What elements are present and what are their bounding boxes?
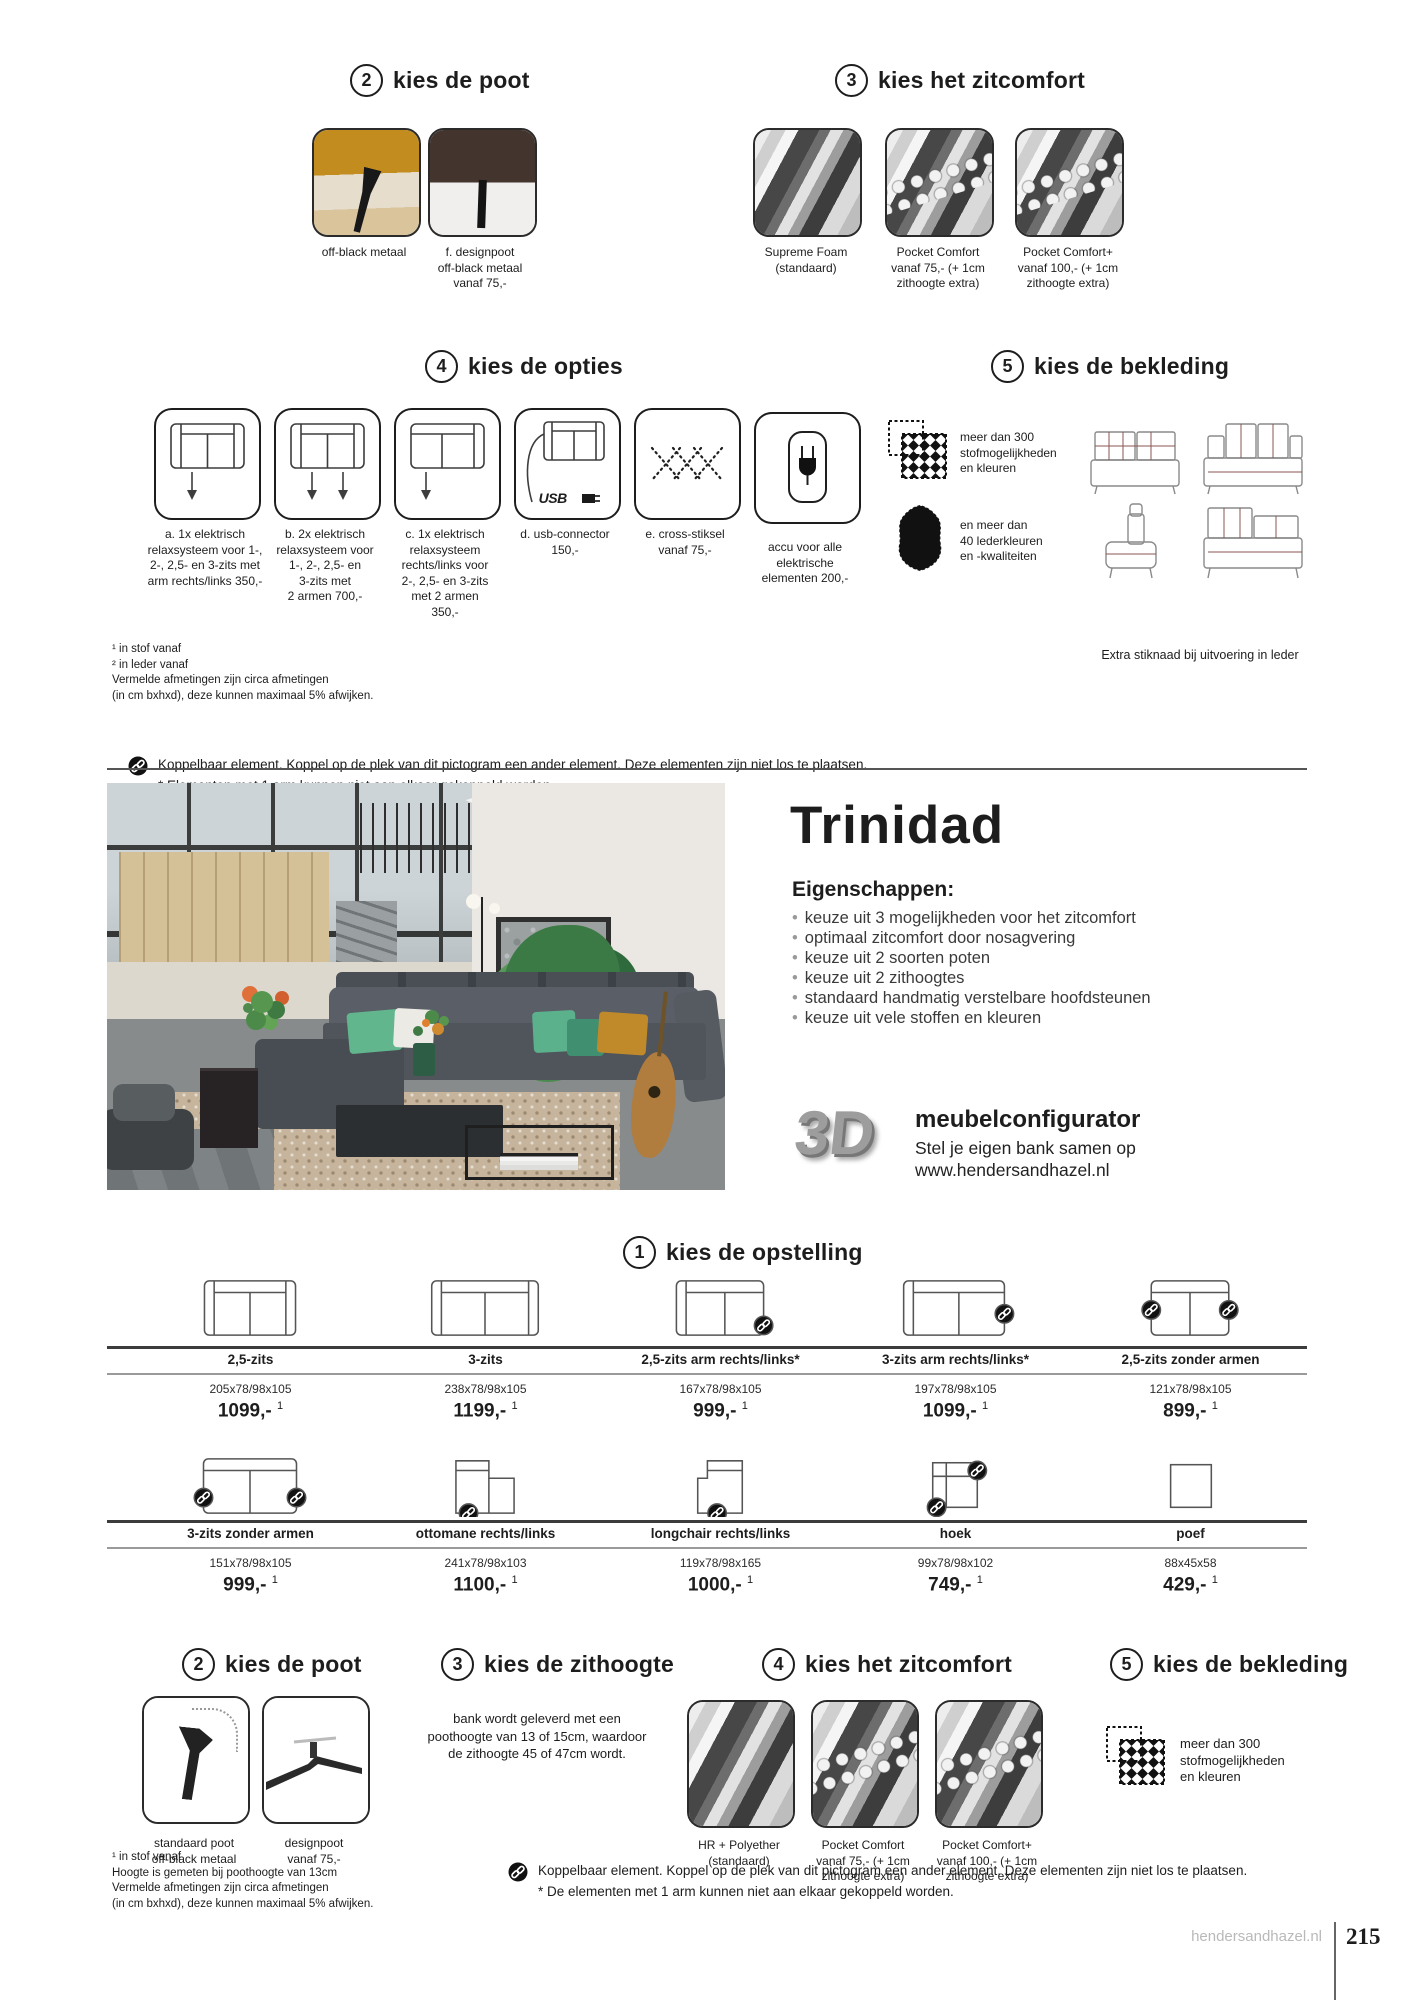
leg-photo-art [314,130,419,235]
pouf-small [113,1084,175,1121]
feature-item: •keuze uit 2 zithoogtes [792,968,964,989]
config-dimensions: 121x78/98x105 [1073,1382,1308,1396]
config-price: 749,- 1 [838,1574,1073,1596]
pictogram-2-5-zits-zonder-armen [1115,1277,1265,1339]
section-title: kies de poot [225,1651,362,1678]
table-rule [107,1373,1307,1375]
comfort-photo-supreme-foam [753,128,862,237]
config-dimensions: 238x78/98x105 [368,1382,603,1396]
pictogram-3-zits-zonder-armen [175,1455,325,1517]
leg-drawing-standaard [142,1696,250,1824]
pictogram-2-5-zits [175,1277,325,1339]
option-relax-2x-icon [274,408,381,520]
stitch-sofa-side-drawing [1098,502,1164,582]
cushion-ochre [597,1011,649,1055]
feature-item: •keuze uit 2 soorten poten [792,948,990,969]
pictogram-longchair [645,1455,795,1517]
feature-item: •keuze uit 3 mogelijkheden voor het zitc… [792,908,1136,929]
pictogram-ottomane [410,1455,560,1517]
product-title: Trinidad [790,795,1004,856]
section-number: 3 [835,64,868,97]
option-relax-1x-icon [154,408,261,520]
comfort-photo-pocket-plus [1015,128,1124,237]
stitch-sofa-drawing [1198,418,1308,498]
table-rule [107,1346,1307,1349]
pictogram-3-zits-arm [880,1277,1030,1339]
section-number: 2 [182,1648,215,1681]
config-dimensions: 99x78/98x102 [838,1556,1073,1570]
config-name: 2,5-zits zonder armen [1073,1352,1308,1367]
config-dimensions: 197x78/98x105 [838,1382,1073,1396]
configurator-title: meubelconfigurator [915,1106,1140,1134]
section-title: kies de opstelling [666,1239,863,1266]
config-price: 1199,- 1 [368,1400,603,1422]
config-dimensions: 241x78/98x103 [368,1556,603,1570]
section-zitcomfort-top: 3 kies het zitcomfort [835,64,1085,97]
pictogram-3-zits [410,1277,560,1339]
pictogram-poef [1115,1455,1265,1517]
config-price: 899,- 1 [1073,1400,1308,1422]
footer-divider [1334,1922,1336,2000]
zithoogte-text: bank wordt geleverd met een poothoogte v… [397,1710,677,1763]
comfort-photo-pocket-plus [935,1700,1043,1828]
section-title: kies de poot [393,67,530,94]
configurator-line1: Stel je eigen bank samen op [915,1138,1136,1159]
section-number: 3 [441,1648,474,1681]
footnotes-top: ¹ in stof vanaf ² in leder vanaf Vermeld… [112,642,373,704]
usb-logo-text: USB [539,490,567,506]
feature-item: •keuze uit vele stoffen en kleuren [792,1008,1041,1029]
config-price: 1099,- 1 [838,1400,1073,1422]
config-dimensions: 88x45x58 [1073,1556,1308,1570]
config-name: 3-zits [368,1352,603,1367]
comfort-photo-pocket [885,128,994,237]
config-price: 999,- 1 [603,1400,838,1422]
option-accu-icon [754,412,861,524]
stitch-sofa-drawing [1198,502,1308,582]
configurator-3d-logo: 3D [791,1098,878,1169]
koppelbaar-icon [506,1860,530,1884]
section-number: 4 [425,350,458,383]
section-number: 2 [350,64,383,97]
table-rule [107,1547,1307,1549]
leg-photo-off-black [312,128,421,237]
section-number: 1 [623,1236,656,1269]
option-usb-icon: USB [514,408,621,520]
section-number: 4 [762,1648,795,1681]
footnotes-bottom: ¹ in stof vanaf Hoogte is gemeten bij po… [112,1850,373,1912]
config-dimensions: 119x78/98x165 [603,1556,838,1570]
config-dimensions: 167x78/98x105 [603,1382,838,1396]
product-photo-living-room [107,783,725,1190]
books [500,1153,578,1170]
section-zitcomfort-bottom: 4 kies het zitcomfort [762,1648,1012,1681]
config-price: 999,- 1 [133,1574,368,1596]
pictogram-hoek [880,1455,1030,1517]
configurator-line2: www.hendersandhazel.nl [915,1160,1110,1181]
cushion-white [393,1008,435,1049]
config-name: ottomane rechts/links [368,1526,603,1541]
section-opstelling: 1 kies de opstelling [623,1236,863,1269]
comfort-photo-hr-polyether [687,1700,795,1828]
comfort-photo-pocket [811,1700,919,1828]
feature-item: •optimaal zitcomfort door nosagvering [792,928,1075,949]
features-heading: Eigenschappen: [792,878,954,902]
page-number: 215 [1346,1924,1381,1950]
section-number: 5 [1110,1648,1143,1681]
feature-item: •standaard handmatig verstelbare hoofdst… [792,988,1151,1009]
table-rule [107,1520,1307,1523]
vase [413,1043,435,1076]
section-bekleding-bottom: 5 kies de bekleding [1110,1648,1348,1681]
option-label: accu voor alle elektrische elementen 200… [723,540,887,587]
config-name: longchair rechts/links [603,1526,838,1541]
pictogram-2-5-zits-arm [645,1277,795,1339]
config-dimensions: 151x78/98x105 [133,1556,368,1570]
option-cross-stiksel-icon [634,408,741,520]
fabric-swatch-icon [1104,1724,1168,1790]
leather-label: en meer dan 40 lederkleuren en -kwalitei… [960,518,1090,565]
config-name: hoek [838,1526,1073,1541]
comfort-label: Pocket Comfort vanaf 75,- (+ 1cm zithoog… [868,245,1008,292]
config-price: 1100,- 1 [368,1574,603,1596]
section-opties: 4 kies de opties [425,350,623,383]
fabric-label: meer dan 300 stofmogelijkheden en kleure… [1180,1736,1320,1786]
stitch-sofa-drawing [1085,424,1185,498]
comfort-label: Supreme Foam (standaard) [736,245,876,276]
section-bekleding-top: 5 kies de bekleding [991,350,1229,383]
koppelbaar-icon [126,754,150,778]
config-name: 3-zits zonder armen [133,1526,368,1541]
config-price: 1000,- 1 [603,1574,838,1596]
section-poot-top: 2 kies de poot [350,64,530,97]
fabric-swatch-icon [886,418,950,484]
leg-photo-art [430,130,535,235]
catalog-page: 2 kies de poot off-black metaal f. desig… [0,0,1414,2000]
section-title: kies het zitcomfort [805,1651,1012,1678]
config-dimensions: 205x78/98x105 [133,1382,368,1396]
section-title: kies de bekleding [1153,1651,1348,1678]
section-number: 5 [991,350,1024,383]
leg-photo-designpoot [428,128,537,237]
section-title: kies de bekleding [1034,353,1229,380]
balcony-railing [360,803,477,872]
section-title: kies het zitcomfort [878,67,1085,94]
config-price: 429,- 1 [1073,1574,1308,1596]
flower-bouquet [243,1003,253,1013]
divider [107,768,1307,770]
koppelbaar-note-line1: Koppelbaar element. Koppel op de plek va… [538,1863,1247,1878]
side-table [200,1068,259,1148]
coffee-table-open [465,1125,613,1180]
section-poot-bottom: 2 kies de poot [182,1648,362,1681]
leg-label: f. designpoot off-black metaal vanaf 75,… [410,245,550,292]
config-price: 1099,- 1 [133,1400,368,1422]
footer-site: hendersandhazel.nl [1150,1928,1322,1945]
fabric-label: meer dan 300 stofmogelijkheden en kleure… [960,430,1090,477]
config-name: 2,5-zits [133,1352,368,1367]
stitch-note: Extra stiknaad bij uitvoering in leder [1080,648,1320,664]
section-zithoogte: 3 kies de zithoogte [441,1648,674,1681]
leather-hide-icon [895,502,945,574]
leg-drawing-designpoot [262,1696,370,1824]
section-title: kies de opties [468,353,623,380]
section-title: kies de zithoogte [484,1651,674,1678]
option-relax-rl-icon [394,408,501,520]
config-name: 3-zits arm rechts/links* [838,1352,1073,1367]
comfort-label: Pocket Comfort+ vanaf 100,- (+ 1cm zitho… [998,245,1138,292]
config-name: poef [1073,1526,1308,1541]
koppelbaar-note-line2: * De elementen met 1 arm kunnen niet aan… [538,1884,954,1899]
config-name: 2,5-zits arm rechts/links* [603,1352,838,1367]
